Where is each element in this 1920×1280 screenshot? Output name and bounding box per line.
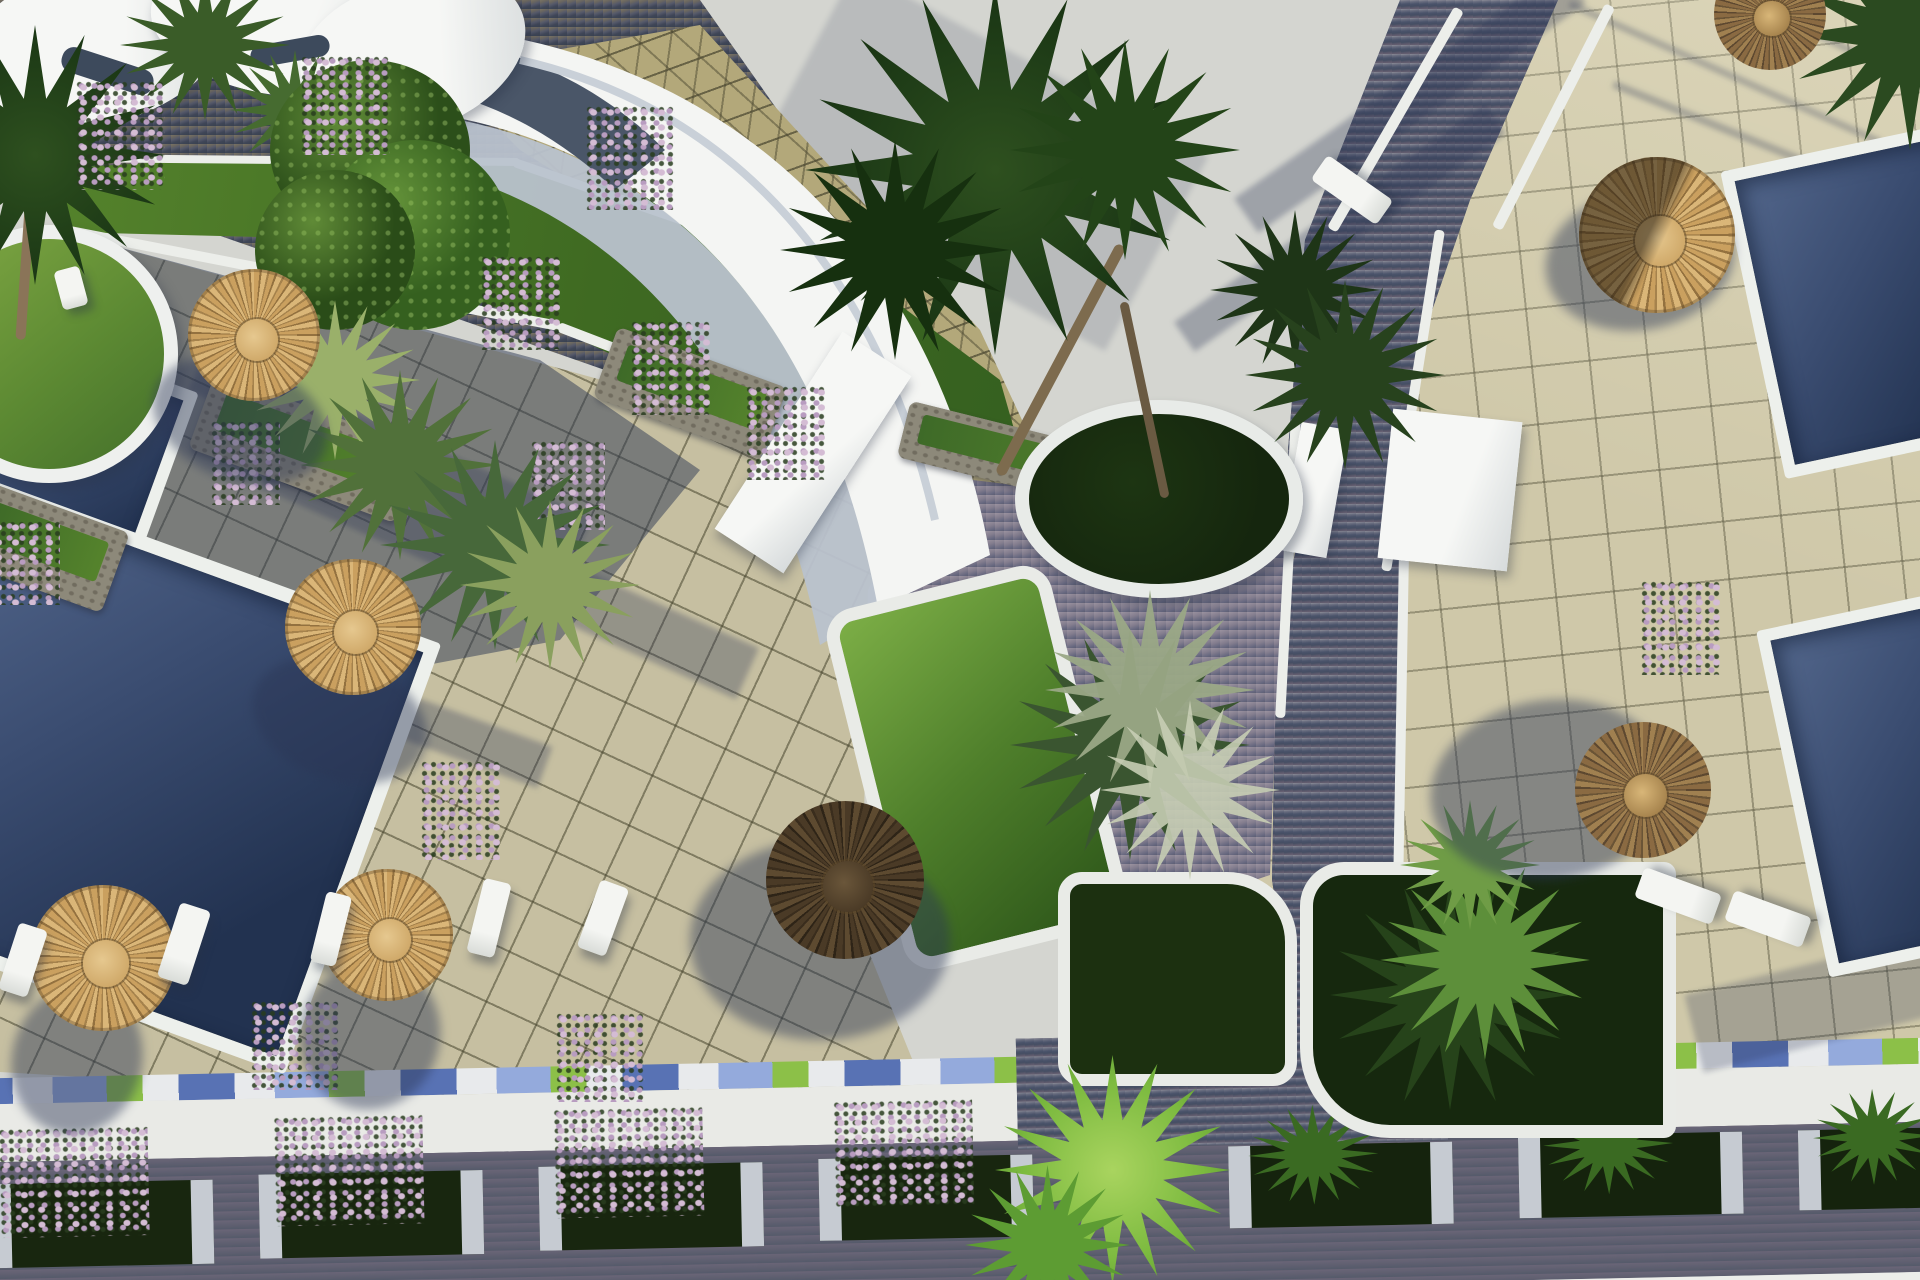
render-canvas: [0, 0, 1920, 1280]
flower-shrub: [745, 385, 825, 480]
fern-clump: [460, 500, 640, 670]
thatch-umbrella-shaded: [766, 801, 924, 959]
central-palm-crown-small: [780, 140, 1010, 360]
central-palm-planter: [1015, 400, 1303, 598]
street-shrub: [272, 1113, 424, 1226]
flower-shrub: [585, 105, 675, 210]
flower-shrub: [420, 760, 500, 860]
white-wall-right-large: [1378, 409, 1523, 572]
central-palm-crown-right: [1010, 40, 1240, 260]
thatch-umbrella-brown: [1575, 722, 1711, 858]
palm-bush-right-of-road: [1245, 280, 1445, 470]
silver-palm-light: [1100, 700, 1280, 880]
flower-shrub: [480, 255, 560, 350]
flower-shrub: [0, 520, 60, 605]
thatch-umbrella: [285, 559, 421, 695]
street-shrub: [0, 1125, 150, 1238]
umbrella-shade-overlay: [1579, 157, 1735, 313]
street-shrub: [552, 1105, 704, 1218]
flower-shrub: [630, 320, 710, 415]
lawn-planter-junction: [1058, 872, 1297, 1086]
street-shrub: [832, 1098, 974, 1209]
street-planter-row: [0, 1127, 1920, 1280]
flower-shrub: [300, 55, 390, 155]
flower-shrub: [555, 1012, 645, 1102]
flower-shrub: [75, 80, 165, 190]
flower-shrub: [1640, 580, 1720, 675]
thatch-umbrella: [188, 269, 320, 401]
thatch-umbrella: [30, 885, 176, 1031]
